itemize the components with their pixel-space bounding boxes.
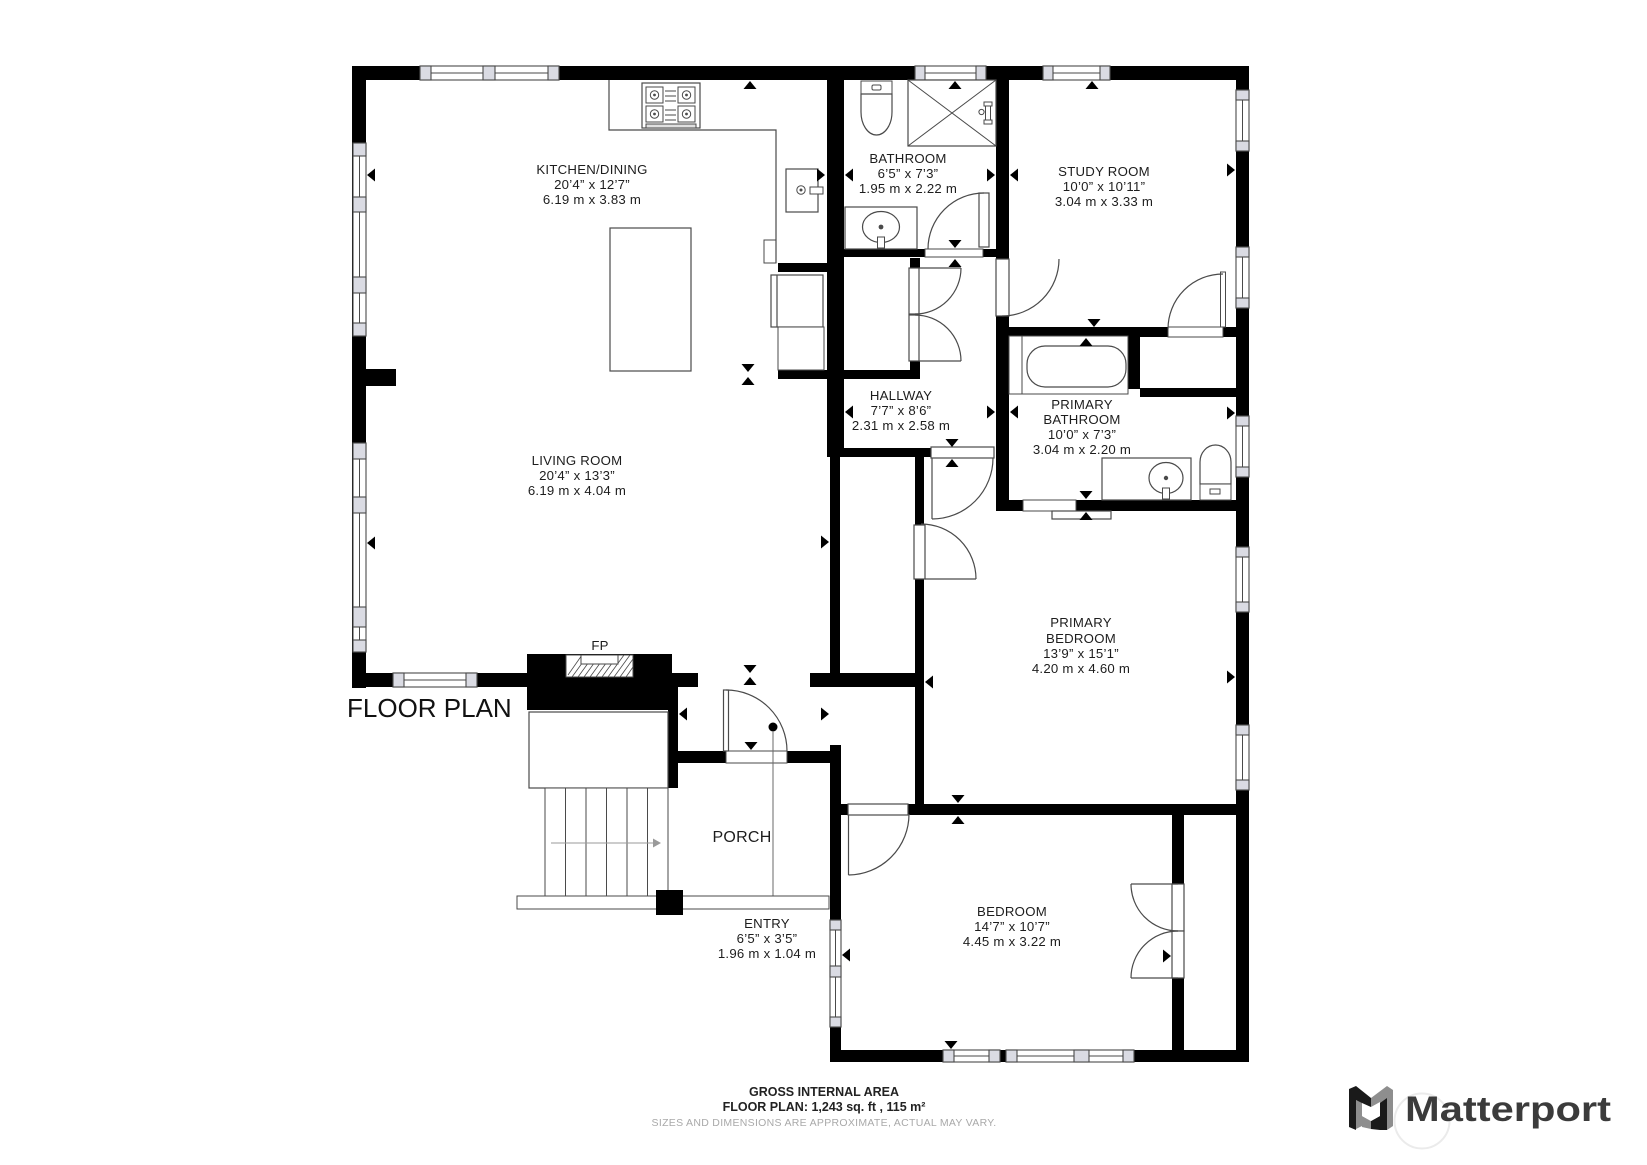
svg-text:6’5” x 3’5”: 6’5” x 3’5” [737,931,798,946]
svg-text:FLOOR PLAN: 1,243 sq. ft , 115: FLOOR PLAN: 1,243 sq. ft , 115 m² [723,1100,926,1114]
svg-text:ENTRY: ENTRY [744,916,790,931]
svg-text:HALLWAY: HALLWAY [870,388,932,403]
svg-text:20’4” x 12’7”: 20’4” x 12’7” [554,177,630,192]
svg-text:3.04 m x 3.33 m: 3.04 m x 3.33 m [1055,194,1153,209]
svg-text:4.20 m x 4.60 m: 4.20 m x 4.60 m [1032,661,1130,676]
svg-text:6’5” x 7’3”: 6’5” x 7’3” [878,166,939,181]
svg-text:PRIMARY: PRIMARY [1050,615,1112,630]
svg-text:20’4” x 13’3”: 20’4” x 13’3” [539,468,615,483]
svg-text:10’0” x 10’11”: 10’0” x 10’11” [1063,179,1145,194]
svg-text:6.19 m x 3.83 m: 6.19 m x 3.83 m [543,192,641,207]
svg-text:Matterport: Matterport [1405,1090,1611,1129]
svg-text:BEDROOM: BEDROOM [1046,631,1116,646]
svg-text:10’0” x 7’3”: 10’0” x 7’3” [1048,427,1116,442]
svg-text:7’7” x 8’6”: 7’7” x 8’6” [871,403,932,418]
svg-text:14’7” x 10’7”: 14’7” x 10’7” [974,919,1050,934]
svg-text:FP: FP [591,638,608,653]
svg-text:GROSS INTERNAL AREA: GROSS INTERNAL AREA [749,1085,899,1099]
svg-text:1.95 m x 2.22 m: 1.95 m x 2.22 m [859,181,957,196]
svg-text:6.19 m x 4.04 m: 6.19 m x 4.04 m [528,483,626,498]
svg-text:2.31 m x 2.58 m: 2.31 m x 2.58 m [852,418,950,433]
svg-text:3.04 m x 2.20 m: 3.04 m x 2.20 m [1033,442,1131,457]
svg-text:BEDROOM: BEDROOM [977,904,1047,919]
svg-text:SIZES AND DIMENSIONS ARE APPRO: SIZES AND DIMENSIONS ARE APPROXIMATE, AC… [652,1117,997,1129]
svg-text:STUDY ROOM: STUDY ROOM [1058,164,1150,179]
svg-text:PORCH: PORCH [712,829,771,846]
svg-text:BATHROOM: BATHROOM [869,151,946,166]
svg-text:KITCHEN/DINING: KITCHEN/DINING [536,162,647,177]
svg-text:FLOOR PLAN: FLOOR PLAN [347,693,512,723]
svg-text:BATHROOM: BATHROOM [1043,412,1120,427]
svg-text:LIVING ROOM: LIVING ROOM [532,453,623,468]
svg-text:4.45 m x 3.22 m: 4.45 m x 3.22 m [963,934,1061,949]
svg-text:13’9” x 15’1”: 13’9” x 15’1” [1043,646,1119,661]
svg-text:PRIMARY: PRIMARY [1051,397,1113,412]
svg-text:1.96 m x 1.04 m: 1.96 m x 1.04 m [718,946,816,961]
